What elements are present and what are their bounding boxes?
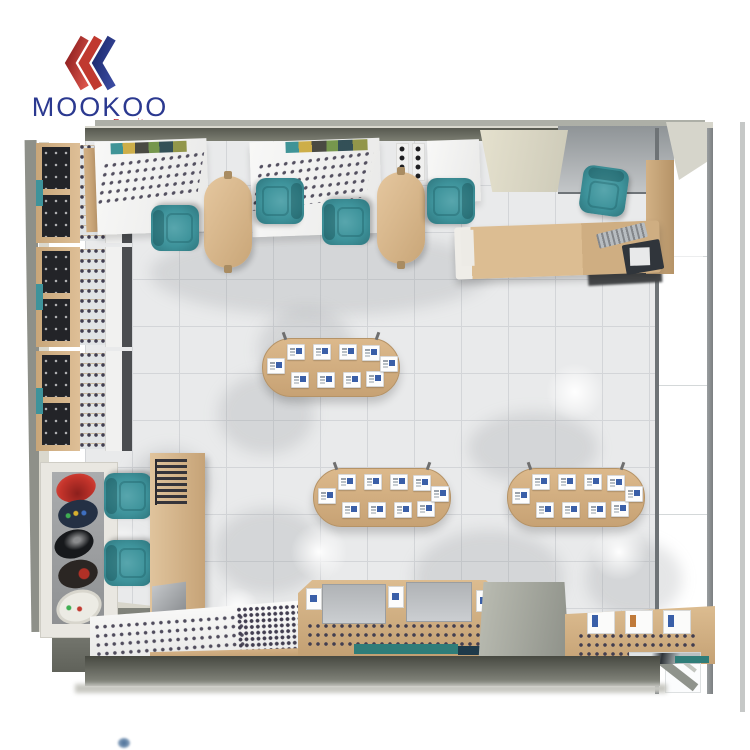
product-card xyxy=(413,475,431,491)
product-card xyxy=(558,474,576,490)
spiral-display-stand xyxy=(155,459,187,505)
product-card xyxy=(362,345,380,361)
oval-display-table xyxy=(507,468,645,527)
product-card xyxy=(364,474,382,490)
product-card xyxy=(388,586,404,608)
fitting-table xyxy=(377,172,425,264)
product-card xyxy=(317,372,335,388)
merchandise-color-strip xyxy=(285,139,367,153)
product-card xyxy=(625,486,643,502)
oval-display-table xyxy=(262,338,400,397)
bottom-wall-shadow xyxy=(75,684,667,693)
product-card xyxy=(588,502,606,518)
fitting-chair xyxy=(151,205,199,251)
product-card xyxy=(342,502,360,518)
eyewear-shelf-grid xyxy=(80,249,105,345)
mirror-station-chair xyxy=(104,473,152,519)
carousel-dot xyxy=(118,738,130,748)
floor-plan-render xyxy=(0,112,750,712)
eyewear-shelf-grid xyxy=(80,353,105,449)
product-card xyxy=(343,372,361,388)
poster-item-black xyxy=(52,525,97,564)
brand-logo-icon xyxy=(64,34,122,92)
window-display-island xyxy=(298,580,500,662)
teal-accent-tag xyxy=(36,388,43,414)
product-card xyxy=(368,502,386,518)
fitting-table xyxy=(204,176,252,268)
fitting-chair xyxy=(322,199,370,245)
white-cabinet xyxy=(105,351,123,451)
product-card-row xyxy=(587,610,691,634)
poster-item-dark xyxy=(56,556,101,592)
product-card xyxy=(532,474,550,490)
cashier-chair xyxy=(578,164,630,218)
product-card xyxy=(287,344,305,360)
teal-display-mat xyxy=(354,644,458,654)
merchandise-color-strip xyxy=(110,141,186,155)
cabinet-dark-face xyxy=(122,351,132,451)
white-cabinet xyxy=(105,247,123,347)
product-card xyxy=(431,486,449,502)
teal-display-mat xyxy=(675,656,709,663)
product-card xyxy=(625,610,653,634)
teal-accent-tag xyxy=(36,284,43,310)
product-card xyxy=(339,344,357,360)
product-card xyxy=(313,344,331,360)
display-black-board xyxy=(42,403,70,445)
product-card xyxy=(607,475,625,491)
display-black-board xyxy=(42,147,70,189)
product-card xyxy=(306,588,322,610)
fitting-chair xyxy=(256,178,304,224)
display-black-board xyxy=(42,251,70,293)
eyewear-display-grid xyxy=(97,152,204,208)
product-card xyxy=(380,356,398,372)
product-card xyxy=(417,501,435,517)
cabinet-dark-face xyxy=(122,247,132,347)
product-card xyxy=(611,501,629,517)
product-card xyxy=(663,610,691,634)
fitting-chair xyxy=(427,178,475,224)
poster-artwork xyxy=(52,472,104,624)
product-card xyxy=(584,474,602,490)
floor-light-glow xyxy=(288,524,350,580)
product-card xyxy=(318,488,336,504)
product-card xyxy=(587,610,615,634)
product-card xyxy=(366,371,384,387)
product-card xyxy=(562,502,580,518)
oval-display-table xyxy=(313,468,451,527)
eyewear-dense-grid xyxy=(237,604,305,653)
bottom-wall xyxy=(85,656,660,686)
floor-shadow-blob xyxy=(150,230,490,316)
display-black-board xyxy=(42,355,70,397)
product-card xyxy=(390,474,408,490)
wall-display-unit xyxy=(36,247,132,347)
display-black-board xyxy=(42,299,70,341)
display-black-board xyxy=(42,195,70,237)
desk-paper xyxy=(460,230,474,266)
teal-accent-tag xyxy=(36,180,43,206)
partition-bulkhead xyxy=(480,130,568,192)
gray-display-panel xyxy=(406,582,472,622)
exterior-edge xyxy=(740,122,745,712)
product-card xyxy=(394,502,412,518)
poster-item-navy xyxy=(56,497,100,532)
product-card xyxy=(536,502,554,518)
product-card xyxy=(267,358,285,374)
product-card xyxy=(291,372,309,388)
product-card xyxy=(338,474,356,490)
wall-display-unit xyxy=(36,351,132,451)
floor-light-glow xyxy=(543,364,607,420)
floor-light-glow xyxy=(588,524,650,580)
gray-display-panel xyxy=(322,584,386,624)
mirror-station-chair xyxy=(104,540,152,586)
product-card xyxy=(512,488,530,504)
